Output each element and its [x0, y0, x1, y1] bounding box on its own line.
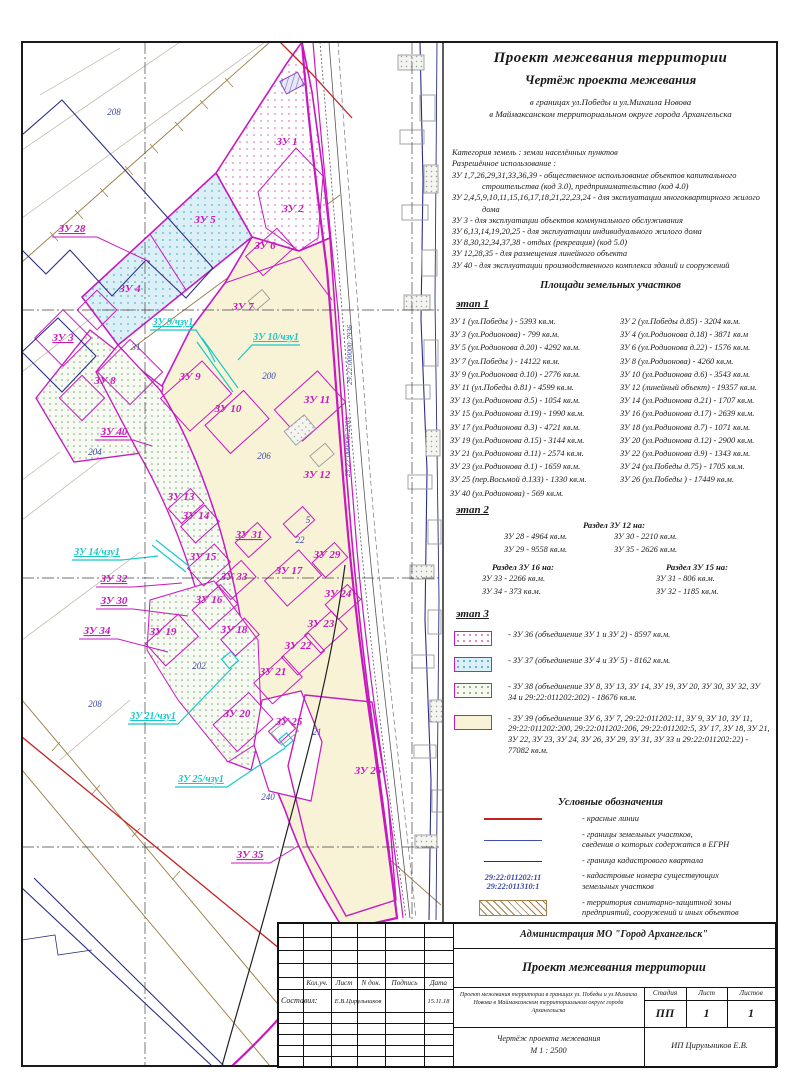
map-label: ЗУ 28 — [58, 223, 86, 235]
cadastral-numbers-symbol: 29:22:011202:1129:22:011310:1 — [444, 873, 582, 891]
cadastral-number: 29:22:011202:11 — [485, 873, 541, 882]
permitted-use-item: ЗУ 6,13,14,19,20,25 - для эксплуатации и… — [452, 226, 774, 237]
map-label: ЗУ 11 — [303, 394, 330, 406]
stage1-areas-table: ЗУ 1 (ул.Победы ) - 5393 кв.м.ЗУ 2 (ул.П… — [450, 315, 777, 500]
map-label: ЗУ 15 — [189, 551, 217, 563]
permitted-use-label: Разрешённое использование : — [452, 159, 556, 168]
legend-item-text: - границы земельных участков,сведения о … — [582, 830, 774, 851]
map-label: ЗУ 33 — [220, 571, 248, 583]
map-label: 31 — [131, 342, 141, 352]
sheet-value: 1 — [686, 1006, 727, 1021]
compiled-date: 15.11.18 — [424, 998, 453, 1005]
title-block: Кол.уч. Лист N док. Подпись Дата Состави… — [277, 922, 777, 1068]
sheet-header: Лист — [686, 989, 727, 997]
stage1-left-cell: ЗУ 17 (ул.Родионова д.3) - 4721 кв.м. — [450, 421, 620, 434]
sheets-header: Листов — [727, 989, 775, 997]
map-label: ЗУ 6 — [253, 240, 276, 252]
drawing-scale: М 1 : 2500 — [457, 1046, 640, 1055]
areas-heading: Площади земельных участков — [444, 280, 777, 291]
legend-text-line: - красные линии — [582, 814, 774, 825]
map-label: ЗУ 10/чзу1 — [252, 332, 299, 343]
map-label: ЗУ 18 — [220, 624, 248, 636]
compiled-name: Е.В.Цирульников — [331, 998, 385, 1005]
stage1-row: ЗУ 23 (ул.Родионова д.1) - 1659 кв.м.ЗУ … — [450, 460, 777, 473]
road-cadastral-label: 29:22:000000:2263 — [343, 417, 352, 477]
map-label: ЗУ 31 — [235, 529, 263, 541]
stage1-right-cell: ЗУ 6 (ул.Родионова д.22) - 1576 кв.м. — [620, 341, 777, 354]
map-label: ЗУ 24 — [324, 588, 352, 600]
pink-swatch — [454, 631, 492, 646]
tb-col-header: Кол.уч. — [303, 979, 331, 987]
map-label: ЗУ 9/чзу1 — [152, 317, 194, 328]
stage1-left-cell: ЗУ 5 (ул.Родионова д.20) - 4292 кв.м. — [450, 341, 620, 354]
permitted-use-list: ЗУ 1,7,26,29,31,33,36,39 - общественное … — [452, 170, 774, 271]
legend-text-line: предприятий, сооружений и иных объектов — [582, 908, 774, 919]
red-line-glyph — [484, 818, 542, 820]
split16-cell: ЗУ 34 - 373 кв.м. — [482, 587, 541, 596]
stage3-item: - ЗУ 39 (объединение ЗУ 6, ЗУ 7, 29:22:0… — [454, 714, 776, 757]
stage1-row: ЗУ 40 (ул.Родионова) - 569 кв.м. — [450, 487, 777, 500]
sheets-value: 1 — [727, 1006, 775, 1021]
quarter-line-glyph — [484, 861, 542, 862]
project-title: Проект межевания территории — [453, 960, 775, 975]
stage3-merge-list: - ЗУ 36 (объединение ЗУ 1 и ЗУ 2) - 8597… — [454, 630, 776, 767]
split16-cell: ЗУ 33 - 2266 кв.м. — [482, 574, 545, 583]
stage1-row: ЗУ 19 (ул.Родионова д.15) - 3144 кв.м.ЗУ… — [450, 434, 777, 447]
stage3-item: - ЗУ 36 (объединение ЗУ 1 и ЗУ 2) - 8597… — [454, 630, 776, 646]
stage3-item: - ЗУ 37 (объединение ЗУ 4 и ЗУ 5) - 8162… — [454, 656, 776, 672]
split15-cell: ЗУ 31 - 806 кв.м. — [656, 574, 715, 583]
map-label: 21 — [313, 727, 322, 737]
stage1-right-cell: ЗУ 4 (ул.Родионова д.18) - 3871 кв.м — [620, 328, 777, 341]
permitted-use-item: ЗУ 3 - для эксплуатации объектов коммуна… — [452, 215, 774, 226]
cyan-swatch — [454, 657, 492, 672]
stage1-label: этап 1 — [456, 298, 489, 310]
map-label: ЗУ 40 — [100, 426, 128, 438]
compiled-label: Составил: — [281, 996, 331, 1005]
map-label: ЗУ 17 — [275, 565, 303, 577]
map-label: ЗУ 19 — [149, 626, 177, 638]
egrn-line-symbol — [444, 840, 582, 841]
stage1-right-cell: ЗУ 14 (ул.Родионова д.21) - 1707 кв.м. — [620, 394, 777, 407]
legend-item: - граница кадастрового квартала — [444, 856, 777, 867]
stage1-row: ЗУ 1 (ул.Победы ) - 5393 кв.м.ЗУ 2 (ул.П… — [450, 315, 777, 328]
stage-value: ПП — [644, 1006, 686, 1021]
map-label: 240 — [261, 792, 275, 802]
stage1-left-cell: ЗУ 11 (ул.Победы д.81) - 4599 кв.м. — [450, 381, 620, 394]
permitted-use-item: ЗУ 8,30,32,34,37,38 - отдых (рекреация) … — [452, 237, 774, 248]
stage1-row: ЗУ 3 (ул.Родионова) - 799 кв.м.ЗУ 4 (ул.… — [450, 328, 777, 341]
legend-item-text: - кадастровые номера существующихземельн… — [582, 871, 774, 892]
stage1-right-cell: ЗУ 24 (ул.Победы д.75) - 1705 кв.м. — [620, 460, 777, 473]
legend-item-text: - граница кадастрового квартала — [582, 856, 774, 867]
quarter-line-symbol — [444, 861, 582, 862]
stage1-right-cell — [620, 487, 777, 500]
legend-text-line: - кадастровые номера существующих — [582, 871, 774, 882]
hatch-swatch — [479, 900, 547, 916]
map-label: 200 — [262, 371, 276, 381]
map-label: ЗУ 29 — [313, 549, 341, 561]
stage1-right-cell: ЗУ 8 (ул.Родионова) - 4260 кв.м. — [620, 355, 777, 368]
map-label: ЗУ 2 — [281, 203, 304, 215]
stage1-left-cell: ЗУ 13 (ул.Родионова д.5) - 1054 кв.м. — [450, 394, 620, 407]
legend-text-line: - территория санитарно-защитной зоны — [582, 898, 774, 909]
split16-title: Раздел ЗУ 16 на: — [492, 562, 554, 572]
road-cadastral-label: 29:22:000000:7936 — [345, 325, 354, 385]
tb-col-header: Дата — [424, 979, 453, 987]
map-label: ЗУ 21 — [259, 666, 287, 678]
map-label: ЗУ 16 — [195, 594, 223, 606]
szz-hatch-symbol — [444, 900, 582, 916]
stage1-left-cell: ЗУ 23 (ул.Родионова д.1) - 1659 кв.м. — [450, 460, 620, 473]
split12-cell: ЗУ 30 - 2210 кв.м. — [614, 532, 677, 541]
stage1-right-cell: ЗУ 26 (ул.Победы ) - 17449 кв.м. — [620, 473, 777, 486]
map-label: ЗУ 5 — [193, 214, 216, 226]
map-label: ЗУ 23 — [307, 618, 335, 630]
annotation-panel: Проект межевания территории Чертёж проек… — [444, 42, 777, 922]
map-label: ЗУ 13 — [167, 491, 195, 503]
stage1-left-cell: ЗУ 7 (ул.Победы ) - 14122 кв.м. — [450, 355, 620, 368]
author-company: ИП Цирульников Е.В. — [644, 1040, 775, 1050]
map-label: ЗУ 8 — [93, 375, 116, 387]
stage1-right-cell: ЗУ 20 (ул.Родионова д.12) - 2900 кв.м. — [620, 434, 777, 447]
legend-text-line: - граница кадастрового квартала — [582, 856, 774, 867]
stage1-left-cell: ЗУ 1 (ул.Победы ) - 5393 кв.м. — [450, 315, 620, 328]
stage1-right-cell: ЗУ 12 (линейный объект) - 19357 кв.м. — [620, 381, 777, 394]
stage1-row: ЗУ 5 (ул.Родионова д.20) - 4292 кв.м.ЗУ … — [450, 341, 777, 354]
legend-item: - границы земельных участков,сведения о … — [444, 830, 777, 851]
organization-name: Администрация МО "Город Архангельск" — [453, 929, 775, 940]
map-label: 204 — [88, 447, 102, 457]
map-label: 202 — [192, 661, 206, 671]
map-label: ЗУ 21/чзу1 — [129, 711, 176, 722]
stage1-left-cell: ЗУ 15 (ул.Родионова д.19) - 1990 кв.м. — [450, 407, 620, 420]
drawing-title: Чертёж проекта межевания — [457, 1034, 640, 1043]
permitted-use-item: ЗУ 40 - для эксплуатации производственно… — [452, 260, 774, 271]
stage1-row: ЗУ 25 (пер.Восьмой д.133) - 1330 кв.м.ЗУ… — [450, 473, 777, 486]
stage1-row: ЗУ 9 (ул.Родионова д.10) - 2776 кв.м.ЗУ … — [450, 368, 777, 381]
map-label: ЗУ 30 — [100, 595, 128, 607]
map-label: ЗУ 22 — [284, 640, 312, 652]
map-label: ЗУ 1 — [275, 136, 297, 148]
map-label: 208 — [107, 107, 121, 117]
split12-cell: ЗУ 35 - 2626 кв.м. — [614, 545, 677, 554]
stage1-left-cell: ЗУ 25 (пер.Восьмой д.133) - 1330 кв.м. — [450, 473, 620, 486]
split15-cell: ЗУ 32 - 1185 кв.м. — [656, 587, 718, 596]
legend-heading: Условные обозначения — [444, 797, 777, 808]
legend-item: - красные линии — [444, 814, 777, 825]
map-label: ЗУ 25/чзу1 — [177, 774, 224, 785]
split12-title: Раздел ЗУ 12 на: — [504, 520, 724, 530]
stage1-left-cell: ЗУ 40 (ул.Родионова) - 569 кв.м. — [450, 487, 620, 500]
map-label: ЗУ 9 — [178, 371, 201, 383]
map-label: ЗУ 4 — [118, 283, 141, 295]
document-title: Проект межевания территории — [444, 50, 777, 67]
legend-item-text: - территория санитарно-защитной зоныпред… — [582, 898, 774, 919]
stage-header: Стадия — [644, 989, 686, 997]
map-label: ЗУ 14/чзу1 — [73, 547, 120, 558]
tb-col-header: Лист — [331, 979, 357, 987]
project-description: Проект межевания территории в границах у… — [457, 991, 640, 1015]
green-swatch — [454, 683, 492, 698]
permitted-use-item: ЗУ 2,4,5,9,10,11,15,16,17,18,21,22,23,24… — [452, 192, 774, 214]
map-label: 22 — [296, 535, 306, 545]
land-category: Категория земель : земли населённых пунк… — [452, 148, 618, 157]
permitted-use-item: ЗУ 1,7,26,29,31,33,36,39 - общественное … — [452, 170, 774, 192]
legend-text-line: земельных участков — [582, 882, 774, 893]
stage1-left-cell: ЗУ 19 (ул.Родионова д.15) - 3144 кв.м. — [450, 434, 620, 447]
egrn-line-glyph — [484, 840, 542, 841]
split15-title: Раздел ЗУ 15 на: — [666, 562, 728, 572]
legend-item: - территория санитарно-защитной зоныпред… — [444, 898, 777, 919]
map-label: ЗУ 3 — [51, 332, 74, 344]
stage1-left-cell: ЗУ 3 (ул.Родионова) - 799 кв.м. — [450, 328, 620, 341]
stage1-right-cell: ЗУ 22 (ул.Родионова д.9) - 1343 кв.м. — [620, 447, 777, 460]
map-label: 208 — [88, 699, 102, 709]
map-label: ЗУ 20 — [223, 708, 251, 720]
red-line-symbol — [444, 818, 582, 820]
stage3-item: - ЗУ 38 (объединение ЗУ 8, ЗУ 13, ЗУ 14,… — [454, 682, 776, 704]
stage1-row: ЗУ 21 (ул.Родионова д.11) - 2574 кв.м.ЗУ… — [450, 447, 777, 460]
legend-text-line: - границы земельных участков, — [582, 830, 774, 841]
split12-cell: ЗУ 28 - 4964 кв.м. — [504, 532, 614, 541]
map-label: 206 — [257, 451, 271, 461]
map-label: ЗУ 25 — [275, 716, 303, 728]
stage1-left-cell: ЗУ 21 (ул.Родионова д.11) - 2574 кв.м. — [450, 447, 620, 460]
stage1-row: ЗУ 11 (ул.Победы д.81) - 4599 кв.м.ЗУ 12… — [450, 381, 777, 394]
stage1-row: ЗУ 7 (ул.Победы ) - 14122 кв.м.ЗУ 8 (ул.… — [450, 355, 777, 368]
permitted-use-item: ЗУ 12,28,35 - для размещения линейного о… — [452, 248, 774, 259]
stage1-right-cell: ЗУ 2 (ул.Победы д.85) - 3204 кв.м. — [620, 315, 777, 328]
stage3-item-text: - ЗУ 36 (объединение ЗУ 1 и ЗУ 2) - 8597… — [508, 630, 770, 646]
document-subtitle: Чертёж проекта межевания — [444, 72, 777, 88]
map-label: ЗУ 14 — [182, 510, 210, 522]
cadastral-number: 29:22:011310:1 — [487, 882, 540, 891]
drawing-sheet: ЗУ 1ЗУ 2ЗУ 5ЗУ 6ЗУ 4ЗУ 7ЗУ 28ЗУ 3ЗУ 8ЗУ … — [0, 0, 800, 1082]
map-label: ЗУ 7 — [231, 301, 254, 313]
stage1-right-cell: ЗУ 16 (ул.Родионова д.17) - 2639 кв.м. — [620, 407, 777, 420]
stage3-item-text: - ЗУ 38 (объединение ЗУ 8, ЗУ 13, ЗУ 14,… — [508, 682, 770, 704]
map-label: ЗУ 26 — [354, 765, 382, 777]
map-label: ЗУ 34 — [83, 625, 111, 637]
map-label: ЗУ 10 — [214, 403, 242, 415]
map-label: 5 — [306, 515, 311, 525]
map-label: ЗУ 32 — [100, 573, 128, 585]
tb-col-header: N док. — [357, 979, 385, 987]
legend-item-text: - красные линии — [582, 814, 774, 825]
scope-line-2: в Маймаксанском территориальном округе г… — [444, 109, 777, 119]
split12-cell: ЗУ 29 - 9558 кв.м. — [504, 545, 614, 554]
tb-col-header: Подпись — [385, 979, 424, 987]
stage1-right-cell: ЗУ 18 (ул.Родионова д.7) - 1071 кв.м. — [620, 421, 777, 434]
map-label: ЗУ 35 — [236, 849, 264, 861]
legend-text-line: сведения о которых содержатся в ЕГРН — [582, 840, 774, 851]
stage3-item-text: - ЗУ 37 (объединение ЗУ 4 и ЗУ 5) - 8162… — [508, 656, 770, 672]
beige-swatch — [454, 715, 492, 730]
scope-line-1: в границах ул.Победы и ул.Михаила Новова — [444, 97, 777, 107]
map-label: ЗУ 12 — [303, 469, 331, 481]
stage1-row: ЗУ 17 (ул.Родионова д.3) - 4721 кв.м.ЗУ … — [450, 421, 777, 434]
stage3-label: этап 3 — [456, 608, 489, 620]
stage1-row: ЗУ 15 (ул.Родионова д.19) - 1990 кв.м.ЗУ… — [450, 407, 777, 420]
stage1-left-cell: ЗУ 9 (ул.Родионова д.10) - 2776 кв.м. — [450, 368, 620, 381]
stage3-item-text: - ЗУ 39 (объединение ЗУ 6, ЗУ 7, 29:22:0… — [508, 714, 770, 757]
stage2-label: этап 2 — [456, 504, 489, 516]
legend-item: 29:22:011202:1129:22:011310:1- кадастров… — [444, 871, 777, 892]
stage1-row: ЗУ 13 (ул.Родионова д.5) - 1054 кв.м.ЗУ … — [450, 394, 777, 407]
stage1-right-cell: ЗУ 10 (ул.Родионова д.6) - 3543 кв.м. — [620, 368, 777, 381]
